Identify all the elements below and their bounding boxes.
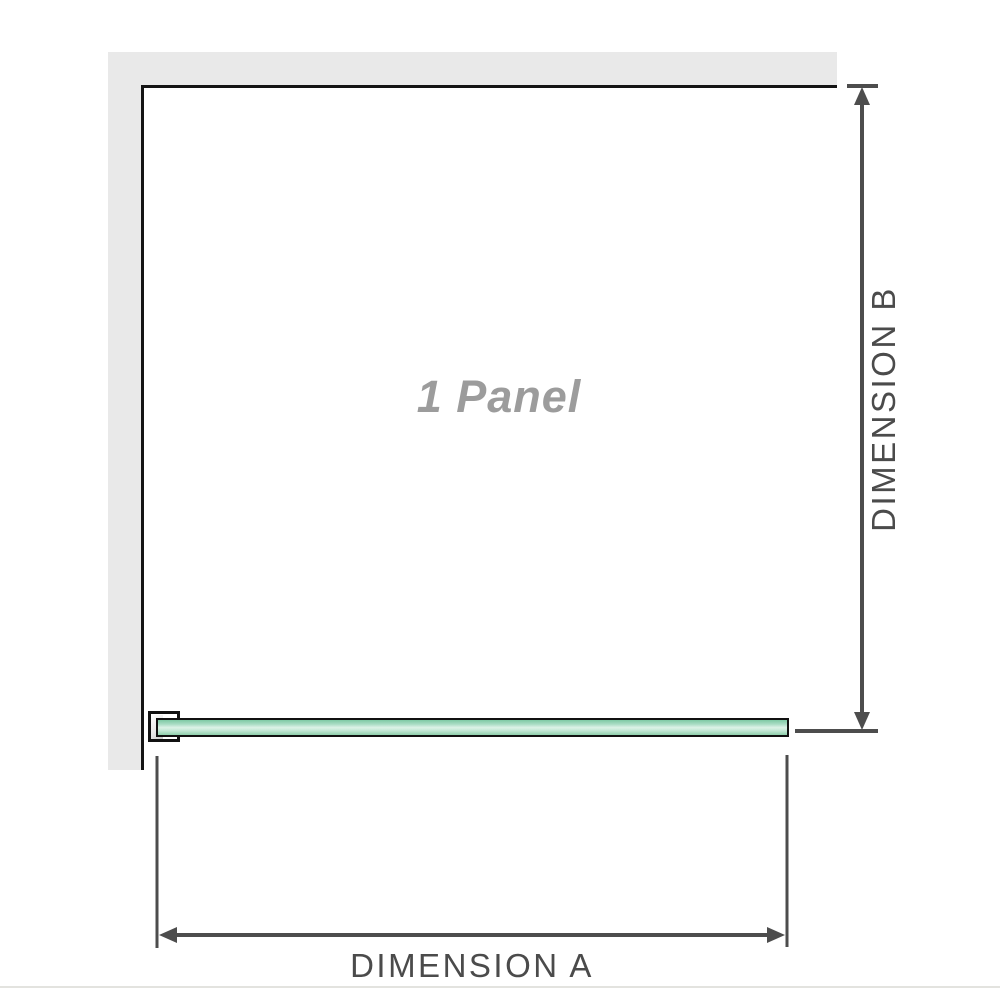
wall-inner-edge-top xyxy=(143,85,837,88)
wall-left xyxy=(108,52,143,770)
wall-top xyxy=(108,52,837,85)
arrowhead-right-icon xyxy=(767,927,785,943)
panel-count-label: 1 Panel xyxy=(417,371,582,423)
arrowhead-up-icon xyxy=(854,87,870,105)
dimension-b-label: DIMENSION B xyxy=(865,286,903,532)
arrowhead-left-icon xyxy=(159,927,177,943)
arrowhead-down-icon xyxy=(854,712,870,730)
bottom-rule xyxy=(0,986,1000,988)
diagram-canvas: 1 Panel DIMENSION A DIMENSION B xyxy=(0,0,1000,1000)
glass-panel-plan-view xyxy=(156,718,789,737)
dimension-lines-overlay xyxy=(0,0,1000,1000)
wall-inner-edge-left xyxy=(141,85,144,770)
dimension-a-label: DIMENSION A xyxy=(272,947,672,985)
